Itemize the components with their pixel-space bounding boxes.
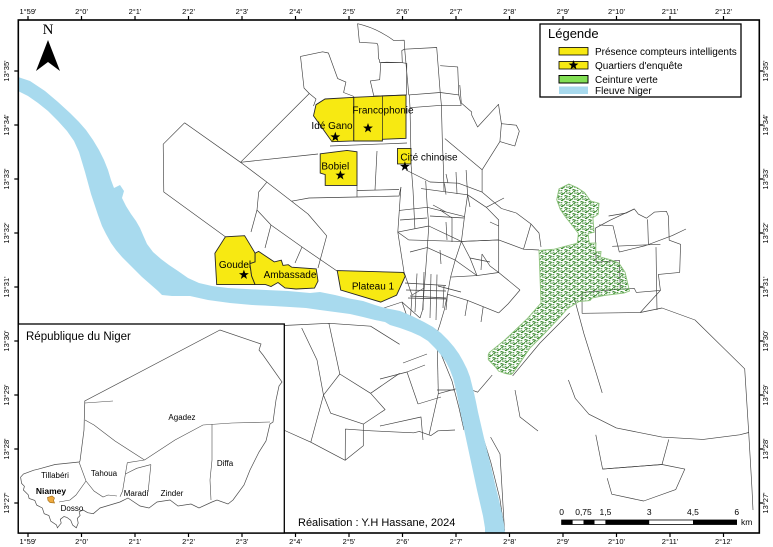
svg-text:Bobiel: Bobiel — [321, 162, 349, 173]
svg-text:13°31': 13°31' — [2, 276, 11, 298]
svg-text:Tillabéri: Tillabéri — [41, 471, 69, 480]
svg-text:2°3': 2°3' — [236, 7, 249, 16]
svg-text:2°10': 2°10' — [608, 7, 626, 16]
svg-text:1°59': 1°59' — [20, 7, 38, 16]
svg-text:2°4': 2°4' — [289, 537, 302, 546]
svg-text:Fleuve Niger: Fleuve Niger — [595, 86, 652, 97]
svg-text:3: 3 — [647, 507, 652, 517]
svg-text:Dosso: Dosso — [61, 504, 84, 513]
svg-text:2°0': 2°0' — [75, 7, 88, 16]
svg-text:Présence compteurs intelligent: Présence compteurs intelligents — [595, 47, 737, 58]
svg-text:2°3': 2°3' — [236, 537, 249, 546]
svg-text:Ambassade: Ambassade — [264, 270, 317, 281]
svg-text:2°2': 2°2' — [182, 7, 195, 16]
svg-text:2°8': 2°8' — [503, 7, 516, 16]
svg-text:Francophonie: Francophonie — [352, 106, 414, 117]
svg-text:Quartiers d'enquête: Quartiers d'enquête — [595, 61, 683, 72]
svg-text:km: km — [741, 517, 752, 527]
svg-text:4,5: 4,5 — [687, 507, 699, 517]
svg-text:2°4': 2°4' — [289, 7, 302, 16]
svg-text:13°29': 13°29' — [2, 384, 11, 406]
svg-text:13°27': 13°27' — [2, 492, 11, 514]
svg-text:Niamey: Niamey — [36, 486, 67, 496]
svg-text:2°5': 2°5' — [343, 537, 356, 546]
svg-text:2°2': 2°2' — [182, 537, 195, 546]
svg-text:Ceinture verte: Ceinture verte — [595, 75, 658, 86]
svg-text:Légende: Légende — [548, 26, 599, 41]
svg-text:2°12': 2°12' — [715, 537, 733, 546]
svg-text:13°32': 13°32' — [2, 222, 11, 244]
svg-text:Maradi: Maradi — [124, 489, 149, 498]
svg-text:2°9': 2°9' — [557, 7, 570, 16]
svg-text:2°8': 2°8' — [503, 537, 516, 546]
svg-text:0,75: 0,75 — [575, 507, 592, 517]
svg-text:Tahoua: Tahoua — [91, 469, 118, 478]
svg-text:1°59': 1°59' — [20, 537, 38, 546]
svg-text:2°6': 2°6' — [396, 537, 409, 546]
svg-text:2°7': 2°7' — [450, 7, 463, 16]
svg-text:1,5: 1,5 — [599, 507, 611, 517]
svg-text:0: 0 — [559, 507, 564, 517]
svg-text:Réalisation : Y.H Hassane, 202: Réalisation : Y.H Hassane, 2024 — [298, 517, 455, 529]
svg-text:2°7': 2°7' — [450, 537, 463, 546]
svg-text:Plateau 1: Plateau 1 — [352, 282, 395, 293]
svg-text:13°33': 13°33' — [2, 168, 11, 190]
svg-text:2°11': 2°11' — [662, 7, 679, 16]
svg-text:Agadez: Agadez — [168, 413, 195, 422]
svg-text:Zinder: Zinder — [161, 489, 184, 498]
svg-text:2°5': 2°5' — [343, 7, 356, 16]
svg-text:2°0': 2°0' — [75, 537, 88, 546]
svg-text:2°12': 2°12' — [715, 7, 733, 16]
svg-text:2°1': 2°1' — [129, 537, 142, 546]
svg-text:2°1': 2°1' — [129, 7, 142, 16]
svg-text:6: 6 — [734, 507, 739, 517]
svg-text:2°6': 2°6' — [396, 7, 409, 16]
svg-text:Idé Gano: Idé Gano — [311, 121, 353, 132]
svg-text:2°10': 2°10' — [608, 537, 626, 546]
svg-text:13°30': 13°30' — [2, 330, 11, 352]
svg-text:13°28': 13°28' — [2, 438, 11, 460]
svg-text:Cité chinoise: Cité chinoise — [400, 153, 458, 164]
svg-text:République du Niger: République du Niger — [26, 331, 131, 343]
svg-text:N: N — [43, 22, 54, 38]
svg-text:Diffa: Diffa — [217, 459, 234, 468]
svg-text:2°9': 2°9' — [557, 537, 570, 546]
svg-text:Goudel: Goudel — [219, 260, 251, 271]
svg-text:13°34': 13°34' — [2, 114, 11, 136]
svg-text:2°11': 2°11' — [662, 537, 679, 546]
svg-text:13°35': 13°35' — [2, 60, 11, 82]
